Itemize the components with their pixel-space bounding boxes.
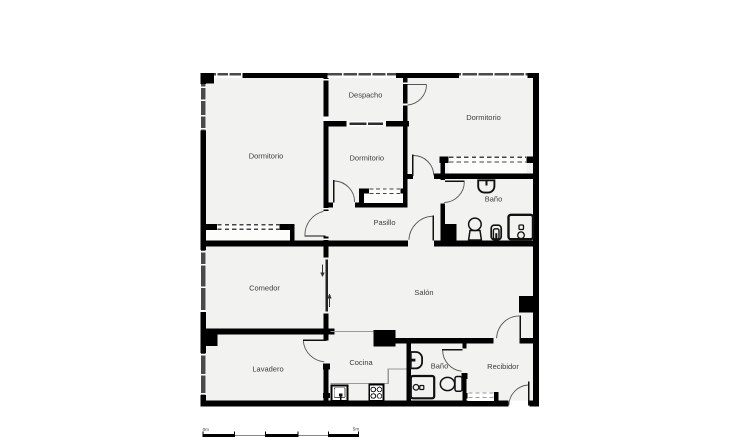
svg-text:Comedor: Comedor [249, 284, 280, 293]
svg-text:Dormitorio: Dormitorio [249, 152, 284, 161]
svg-text:5m: 5m [353, 427, 360, 432]
svg-text:Despacho: Despacho [349, 91, 383, 100]
svg-text:Dormitorio: Dormitorio [350, 154, 385, 163]
svg-text:Pasillo: Pasillo [373, 218, 395, 227]
svg-text:Dormitorio: Dormitorio [466, 113, 501, 122]
svg-text:Baño: Baño [485, 195, 503, 204]
svg-text:Lavadero: Lavadero [252, 365, 283, 374]
svg-text:Recibidor: Recibidor [487, 362, 519, 371]
svg-text:0m: 0m [203, 427, 210, 432]
svg-text:Cocina: Cocina [349, 358, 373, 367]
svg-text:Salón: Salón [414, 288, 433, 297]
svg-text:Baño: Baño [431, 362, 449, 371]
